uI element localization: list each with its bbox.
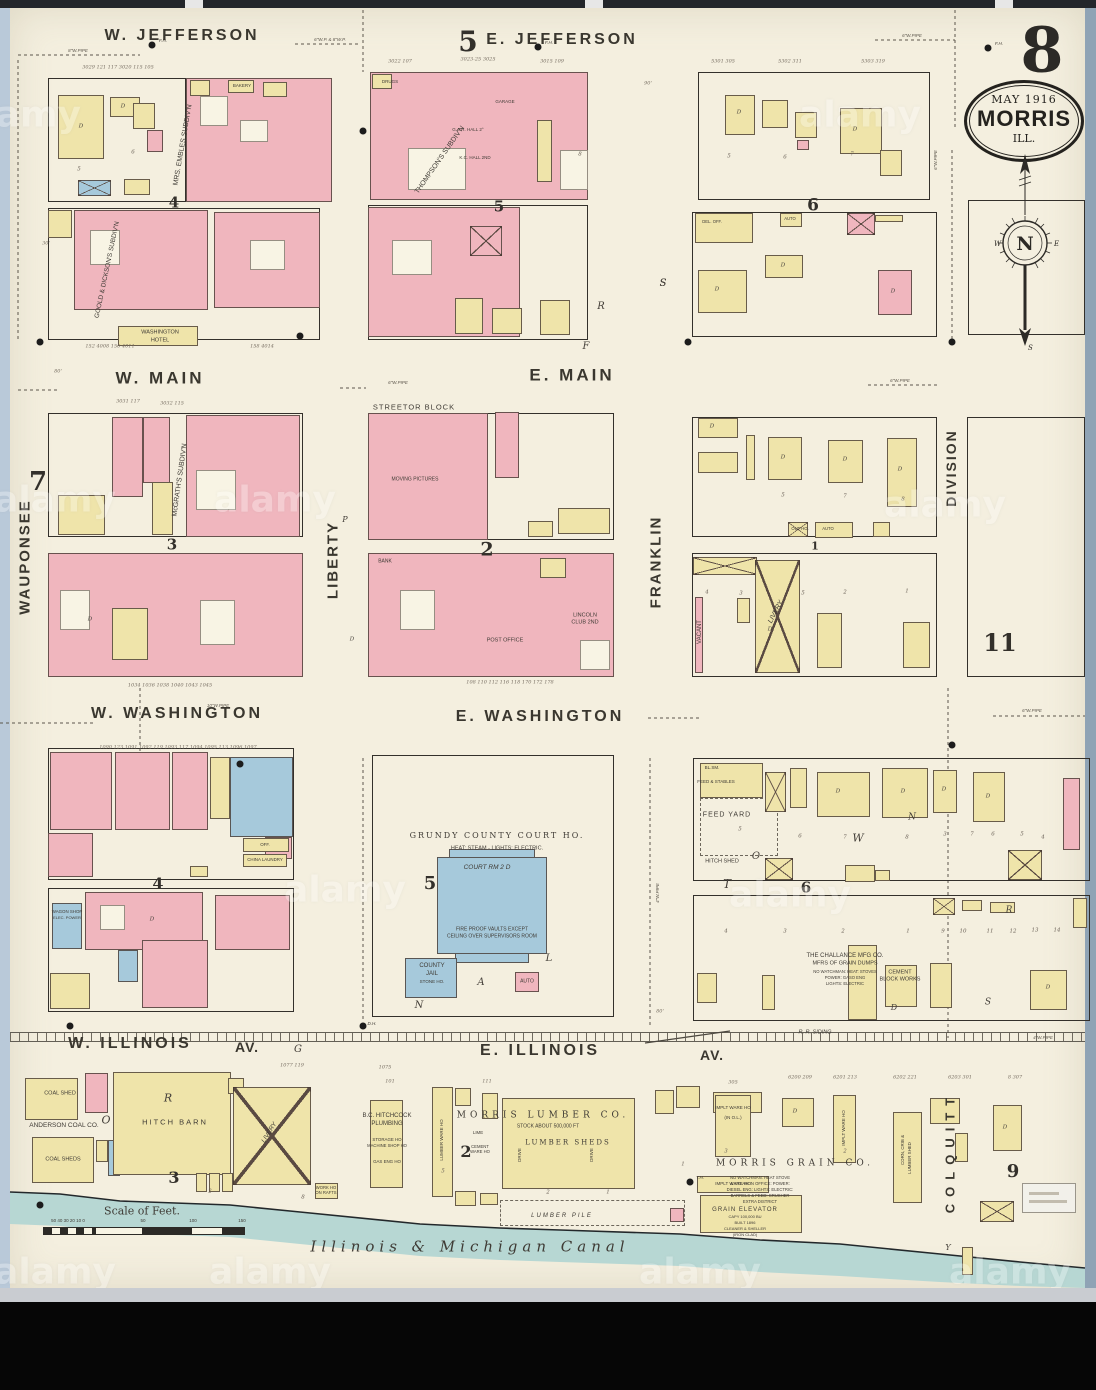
block-number: 4 [152,876,163,892]
map-annotation: 50 40 30 20 10 0 [51,1219,85,1224]
building [930,963,952,1008]
dwelling-mark: D [836,789,840,795]
lot-number: 1 [905,589,909,595]
block-number: 2 [480,541,493,560]
map-annotation: POWER: GASO ENG [825,976,866,980]
building [817,772,870,817]
svg-text:W: W [994,240,1002,248]
map-annotation: DEL. OFF. [702,220,722,224]
alamy-footer-bar: alamy Image ID: 2HEGT6D www.alamy.com [0,1302,1096,1390]
address-numbers: 5302 311 [778,60,802,65]
alamy-watermark: alamy [729,875,851,916]
dwelling-mark: D [737,110,741,116]
svg-text:S: S [1028,344,1033,352]
map-annotation: POST OFFICE [487,638,524,644]
building [470,226,502,256]
building [762,100,788,128]
lot-number: 6 [798,834,802,840]
building [962,900,982,911]
map-annotation: BL.SM. [705,766,720,771]
lot-number: 3 [739,591,743,597]
map-annotation: AUTO [784,217,796,221]
dwelling-mark: D [843,457,847,463]
building [765,772,786,812]
map-annotation: BARRELS & FEED: CRUSHER [731,1194,790,1198]
building [560,150,588,190]
map-annotation: THE CHALLANCE MFG CO. [806,953,883,959]
map-annotation: WARE HO [470,1150,490,1154]
building [115,752,170,830]
address-numbers: 158 4014 [250,345,274,350]
dwelling-mark: D [121,104,125,110]
building [492,308,522,334]
map-annotation: COAL SHEDS [45,1157,80,1163]
building [762,975,775,1010]
building [455,298,483,334]
lot-number: 5 [727,154,731,160]
map-annotation: BUILT 1896 [735,1221,756,1225]
street-name-label: E. WASHINGTON [456,709,625,725]
building [190,866,208,877]
compass-n-monogram: N [1016,233,1033,255]
map-annotation: K.C. HALL 2ND [459,156,490,161]
block-letter: L [546,954,553,964]
building [1008,850,1042,880]
block-letter: S [660,279,667,289]
dwelling-mark: D [88,617,92,623]
dwelling-mark: D [942,787,946,793]
block-number: 9 [1007,1163,1020,1181]
address-numbers: 5301 305 [711,60,735,65]
building [782,1098,814,1127]
hydrant-dot [685,339,692,346]
building [790,768,807,808]
hydrant-dot [37,1202,44,1209]
lot-number: 7 [970,832,974,838]
map-annotation: MFRS OF GRAIN DUMPS [812,961,877,967]
lot-number: 8 [301,1195,305,1201]
compass-rose-icon: N W E S [988,152,1062,352]
street-name-label: AV. [700,1048,724,1062]
map-annotation: CEILING OVER SUPERVISORS ROOM [447,935,537,940]
map-annotation: GARAGE [495,100,514,105]
lot-number: 2 [208,1189,212,1195]
hydrant-dot [149,42,156,49]
map-annotation: EXTRA DISTRICT [743,1200,777,1204]
address-numbers: 8 307 [1008,1076,1022,1081]
block-letter: R [597,302,605,312]
map-annotation: CORN, CRIB & [901,1135,905,1165]
lot-number: 12 [1010,929,1017,935]
dwelling-mark: D [781,455,785,461]
building [222,1173,233,1192]
hydrant-dot [67,1023,74,1030]
building [50,752,112,830]
map-annotation: T.H. [696,1176,704,1181]
map-annotation: CAPY 100,000 BU [728,1215,761,1219]
map-annotation: FIRE PROOF VAULTS EXCEPT [456,928,528,933]
map-annotation: IMPLT WARE HO [715,1106,750,1111]
pipe-label: 4"W.PIPE [1033,1036,1053,1041]
block-number: 5 [494,200,504,215]
map-annotation: FEED & STABLES [697,780,734,785]
building [250,240,285,270]
map-annotation: FEED YARD [703,812,751,819]
map-annotation: COAL SHED [44,1091,76,1097]
address-numbers: 80' [54,370,62,375]
dwelling-mark: D [898,467,902,473]
street-name-label: AV. [235,1040,259,1054]
block-number: 5 [424,875,437,893]
building [118,950,138,982]
dwelling-mark: D [768,627,772,633]
building [537,120,552,182]
building [670,1208,684,1222]
block-letter: W [852,833,863,844]
lot-number: 3 [943,832,947,838]
block-letter: O [101,1115,110,1126]
alamy-watermark: alamy [0,95,81,136]
address-numbers: 3031 117 [116,400,140,405]
map-annotation: COURT RM 2 D [464,865,511,872]
building [230,757,293,837]
building [142,940,208,1008]
map-annotation: (IRON CLAD) [733,1233,757,1237]
map-annotation: F.H. [159,39,167,44]
address-numbers: 3032 115 [160,402,184,407]
lot-number: 14 [1054,928,1061,934]
map-annotation: STORAGE HO [372,1138,401,1142]
map-annotation: CLUB 2ND [571,620,598,626]
address-numbers: 5303 319 [861,60,885,65]
map-annotation: BLOCK WORKS [880,977,921,983]
hydrant-dot [949,339,956,346]
svg-text:E: E [1053,240,1059,248]
lot-number: 6 [991,832,995,838]
pipe-label: 6"W.P. & 8"W.P. [314,38,346,43]
building [558,508,610,534]
hydrant-dot [535,44,542,51]
block-number: 1 [811,541,819,552]
building [85,1073,108,1113]
building [875,870,890,881]
building [528,521,553,537]
alamy-watermark: alamy [209,1252,331,1293]
hydrant-dot [949,742,956,749]
lot-number: 7 [843,494,847,500]
map-annotation: IMPLT WARE HO [715,1182,750,1187]
map-annotation: OUT HO. [791,527,808,531]
map-annotation: GRUNDY COUNTY COURT HO. [410,832,585,840]
map-annotation: HITCH SHED [705,859,739,865]
map-annotation: MORRIS GRAIN CO. [716,1160,874,1169]
street-name-label: E. MAIN [529,367,614,384]
pipe-label: 6"W.PIPE [1022,709,1042,714]
map-annotation: LUMBER WARE HO [440,1119,445,1160]
pipe-label: 6"W.PIPE [890,379,910,384]
block-letter: A [477,978,484,988]
lot-number: 5 [77,167,81,173]
lot-number: 5 [781,493,785,499]
building [172,752,208,830]
building [147,130,163,152]
building [746,435,755,480]
map-annotation: VACANT [697,620,703,644]
map-annotation: 50 [140,1219,145,1224]
street-name-label: W. ILLINOIS [68,1036,192,1052]
map-annotation: GAS ENG HO [373,1160,401,1164]
block-letter: F [583,342,590,352]
block-number: 6 [807,198,819,215]
map-annotation: CLEANER & SHELLER [724,1227,766,1231]
address-numbers: 6203 301 [948,1076,972,1081]
alamy-watermark: alamy [214,480,336,521]
pipe-label: 6"W.PIPE [934,150,939,170]
pipe-label: 10"W.PIPE [207,704,229,709]
block-letter: R [1006,907,1013,916]
lot-number: 2 [843,590,847,596]
map-annotation: HITCH BARN [142,1118,208,1126]
building [48,833,93,877]
block-letter: S [985,999,991,1008]
block-letter: O [752,852,760,862]
building [152,482,173,535]
map-annotation: MOVING PICTURES [392,478,439,483]
map-annotation: AUTO [520,980,534,985]
dwelling-mark: D [710,424,714,430]
street-name-label: FRANKLIN [649,516,664,609]
building [25,1078,78,1120]
building [903,622,930,668]
building [455,1088,471,1106]
hydrant-dot [37,339,44,346]
map-annotation: DRIVE [590,1148,595,1162]
building [143,417,170,483]
map-annotation: (IN O.L.) [724,1116,741,1121]
lot-number: 6 [131,150,135,156]
building [455,1191,476,1206]
block-letter: R [164,1093,172,1104]
map-annotation: G.A.R. HALL 2° [452,128,483,133]
lot-number: 3 [783,929,787,935]
building [370,72,588,200]
map-date: MAY 1916 [967,93,1081,106]
hydrant-dot [360,1023,367,1030]
building [655,1090,674,1114]
building [96,1140,108,1162]
map-annotation: LIME [473,1131,483,1135]
building [933,898,955,915]
map-annotation: STONE HO. [420,980,445,985]
map-annotation: JAIL [426,971,438,977]
lot-number: 7 [850,152,854,158]
alamy-watermark: alamy [284,870,406,911]
lot-number: 8 [578,152,582,158]
hydrant-dot [237,761,244,768]
alamy-watermark: alamy [799,95,921,136]
block-letter: D [891,1004,897,1012]
address-numbers: 1090 123 1091 1092 119 1093 117 1094 109… [99,746,256,751]
building [880,150,902,176]
building [50,973,90,1009]
lot-number: 5 [801,591,805,597]
building [455,953,529,963]
pipe-label: 4"W.PIPE [656,883,661,903]
alamy-watermark: alamy [949,1252,1071,1293]
building [540,300,570,335]
map-annotation: LUMBER SHEDS [525,1140,611,1147]
dwelling-mark: D [986,794,990,800]
map-annotation: IMPLT WARE HO [842,1110,847,1145]
address-numbers: 3029 121 117 3020 115 105 [82,66,154,71]
building [200,96,228,126]
block-number: 3 [167,538,177,553]
block-letter: G [294,1045,302,1055]
address-numbers: 108 110 112 116 118 170 172 178 [466,681,553,686]
map-annotation: ANDERSON COAL CO. [29,1123,98,1130]
building [875,215,903,222]
pipe-label: 8"W.PIPE [68,49,88,54]
dwelling-mark: D [150,917,154,923]
hydrant-dot [985,45,992,52]
block-letter: P [342,516,347,524]
building [580,640,610,670]
dwelling-mark: D [350,637,354,643]
street-name-label: COLQUITT [944,1091,957,1213]
sheet-number: 8 [1020,14,1063,87]
map-annotation: ELEC. POWER [53,916,81,920]
alamy-watermark: alamy [884,485,1006,526]
building [1073,898,1087,928]
dwelling-mark: D [781,263,785,269]
building [693,557,757,575]
block-number: 4 [169,196,179,211]
lot-number: 11 [987,929,994,935]
address-numbers: 101 [385,1080,395,1085]
address-numbers: 80' [656,1010,664,1015]
lot-number: 6 [783,155,787,161]
lot-number: 5 [441,1169,445,1175]
lot-number: 4 [705,590,709,596]
address-numbers: 90' [644,82,652,87]
dwelling-mark: D [793,1109,797,1115]
block-number: 5 [458,28,477,56]
pipe-label: 6"W.PIPE [902,34,922,39]
map-city: MORRIS [967,106,1081,132]
block-number: 3 [168,1170,179,1186]
building [233,1087,311,1185]
map-annotation: GRAIN ELEVATOR [712,1207,778,1213]
building [698,452,738,473]
lot-number: 7 [843,835,847,841]
map-annotation: LUMBER PILE [531,1213,593,1219]
lot-number: 1 [606,1190,610,1196]
address-numbers: 6200 209 [788,1076,812,1081]
hydrant-dot [687,1179,694,1186]
scale-bar [43,1227,245,1235]
building [993,1105,1022,1151]
lot-number: 2 [841,929,845,935]
lot-number: 2 [546,1190,550,1196]
map-annotation: LIGHTS: ELECTRIC [826,982,864,986]
alamy-watermark: alamy [0,1252,116,1293]
building [210,757,230,819]
building [240,120,268,142]
building [540,558,566,578]
building [112,417,143,497]
address-numbers: 1077 119 [280,1064,304,1069]
street-name-label: E. JEFFERSON [486,32,638,48]
map-annotation: F.H. [545,41,553,46]
lot-number: 9 [941,929,945,935]
map-annotation: DRIVE [518,1148,523,1162]
map-annotation: MACHINE SHOP HO [367,1144,407,1148]
map-annotation: Illinois & Michigan Canal [310,1240,629,1255]
street-name-label: W. MAIN [116,370,205,387]
building [100,905,125,930]
map-annotation: AUTO [822,527,834,531]
lot-number: 5 [738,827,742,833]
building [698,418,738,438]
address-numbers: 305 [728,1081,738,1086]
address-numbers: 3023-25 3025 [460,58,495,63]
building [78,180,111,196]
map-annotation: 100 [189,1219,197,1224]
map-annotation: HOTEL [151,338,169,344]
map-annotation: ON RAFTS [315,1191,336,1195]
address-numbers: 152 4008 156 4011 [85,345,134,350]
block-letter: N [908,814,916,823]
building [60,590,90,630]
street-name-label: LIBERTY [326,521,341,599]
map-annotation: B.C. HITCHCOCK [362,1113,411,1119]
building [817,613,842,668]
lot-number: 2 [843,1149,847,1155]
alamy-watermark: alamy [0,480,116,521]
address-numbers: 1034 1036 1038 1040 1043 1045 [128,684,212,689]
scan-bottom-margin [0,1288,1096,1302]
hydrant-dot [360,128,367,135]
map-annotation: CHINA LAUNDRY [247,858,283,862]
building [1063,778,1080,850]
lot-number: 13 [1032,928,1039,934]
building [980,1201,1014,1222]
building [200,600,235,645]
building [112,608,148,660]
address-numbers: 6201 213 [833,1076,857,1081]
building [676,1086,700,1108]
map-annotation: BAKERY [233,84,251,89]
building [133,103,155,129]
map-annotation: R. R. SIDING [798,1030,831,1036]
lot-number: 1 [681,1162,685,1168]
building [48,210,72,238]
lot-number: 1 [906,929,910,935]
address-numbers: 111 [482,1080,492,1085]
map-annotation: DRUGS [382,80,398,85]
address-numbers: 3022 107 [388,60,412,65]
map-annotation: HEAT: STEAM - LIGHTS: ELECTRIC. [451,846,543,852]
address-numbers: 6202 221 [893,1076,917,1081]
lot-number: 8 [905,835,909,841]
map-annotation: DIESEL ENG: LIGHTS: ELECTRIC: [727,1188,794,1192]
sanborn-map-scan: W. JEFFERSONE. JEFFERSONW. MAINE. MAINW.… [0,0,1096,1390]
building [124,179,150,195]
map-annotation: LUMBER SHED [908,1142,912,1174]
map-annotation: 150 [238,1219,246,1224]
map-annotation: CEMENT [888,970,911,976]
map-annotation: COUNTY [419,963,444,969]
